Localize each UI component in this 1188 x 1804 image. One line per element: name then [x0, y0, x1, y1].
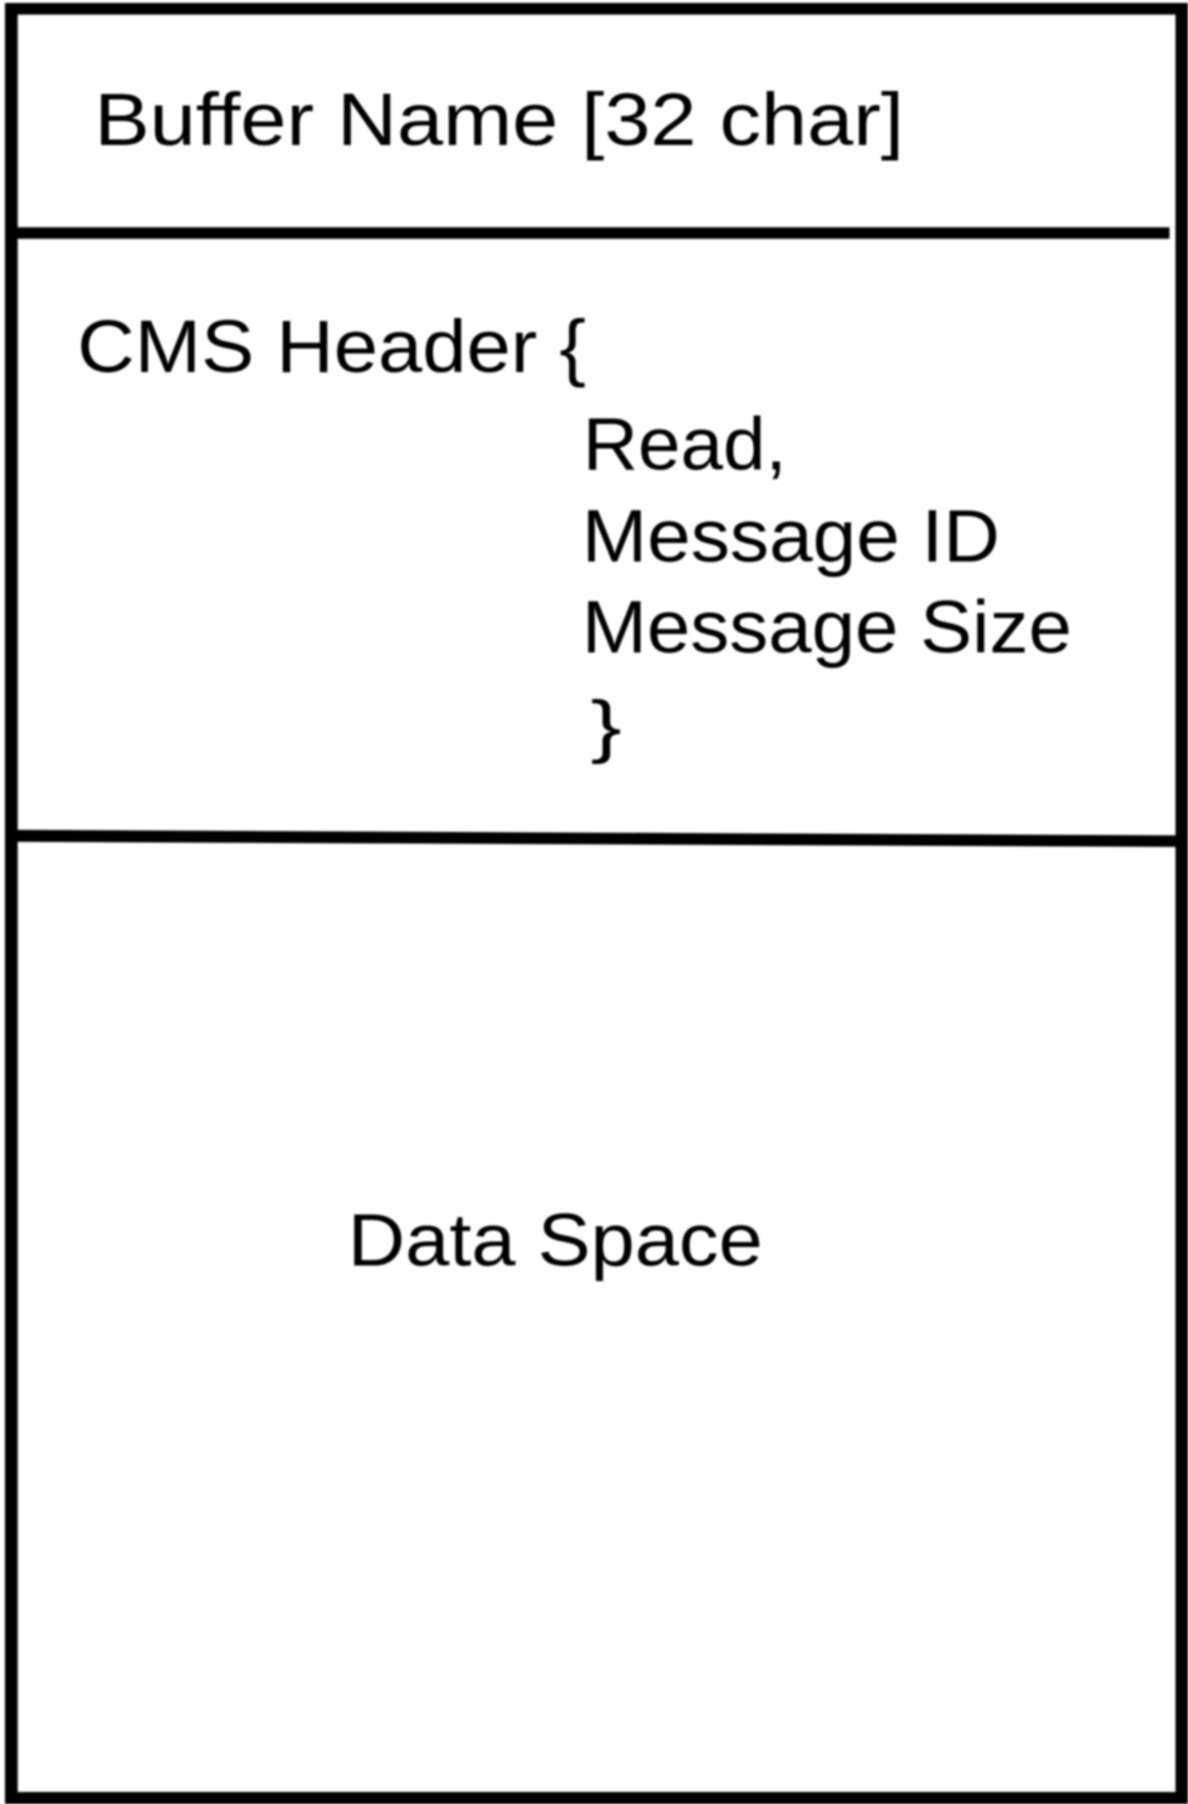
- svg-text:Data Space: Data Space: [348, 1199, 763, 1282]
- svg-text:Read,: Read,: [583, 403, 787, 486]
- svg-text:Message ID: Message ID: [582, 495, 1000, 578]
- svg-text:Buffer Name [32 char]: Buffer Name [32 char]: [94, 78, 904, 161]
- svg-text:Message Size: Message Size: [582, 586, 1072, 669]
- svg-text:}: }: [591, 686, 622, 764]
- svg-text:CMS Header {: CMS Header {: [77, 305, 586, 388]
